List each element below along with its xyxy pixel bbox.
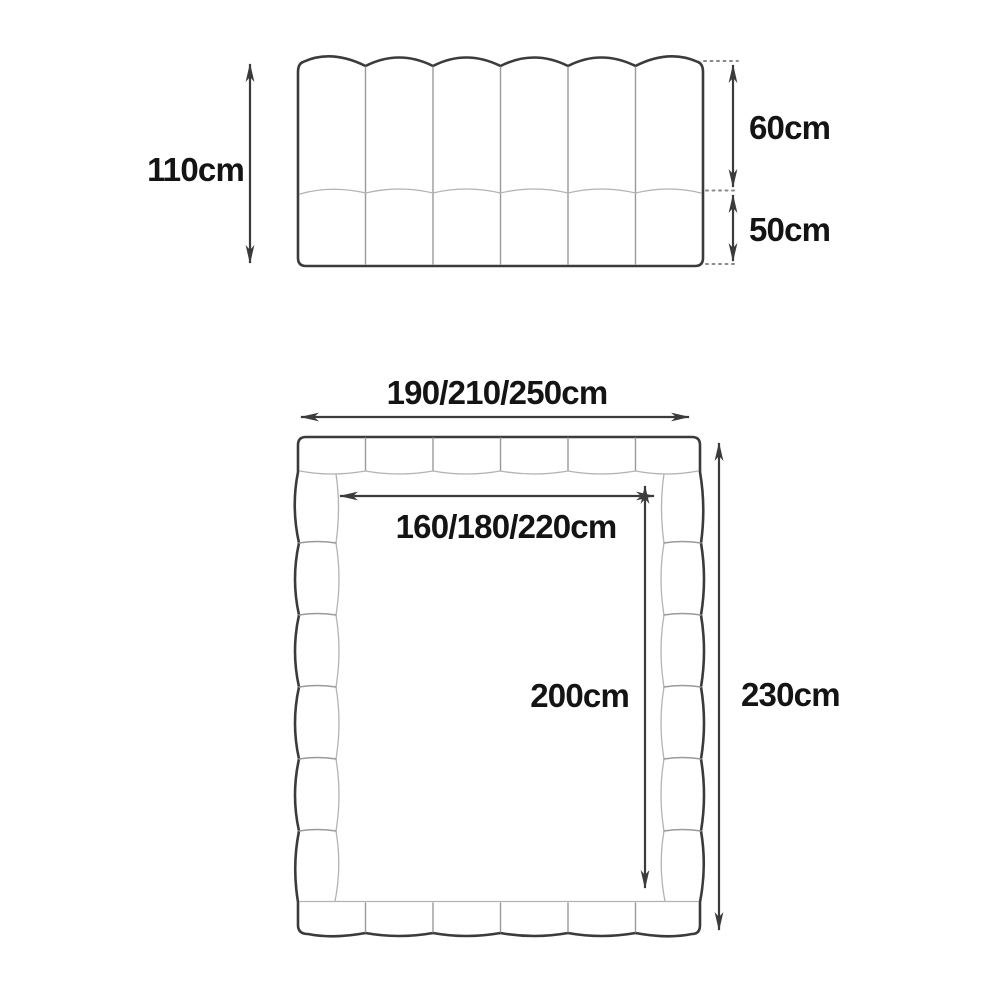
height-dimension-label: 110cm [147, 151, 244, 188]
side-view-diagram: 110cm 60cm 50cm [147, 56, 830, 266]
outer-width-dimension-label: 190/210/250cm [387, 374, 608, 411]
lower-section-dimension-label: 50cm [749, 211, 830, 248]
inner-width-dimension-label: 160/180/220cm [396, 508, 617, 545]
inner-length-dimension-label: 200cm [530, 677, 629, 714]
bed-dimension-diagram: 110cm 60cm 50cm 190/210/250cm [0, 0, 1000, 1000]
top-view-diagram: 190/210/250cm [295, 374, 840, 936]
outer-length-dimension-label: 230cm [741, 676, 840, 713]
upper-section-dimension-label: 60cm [749, 109, 830, 146]
